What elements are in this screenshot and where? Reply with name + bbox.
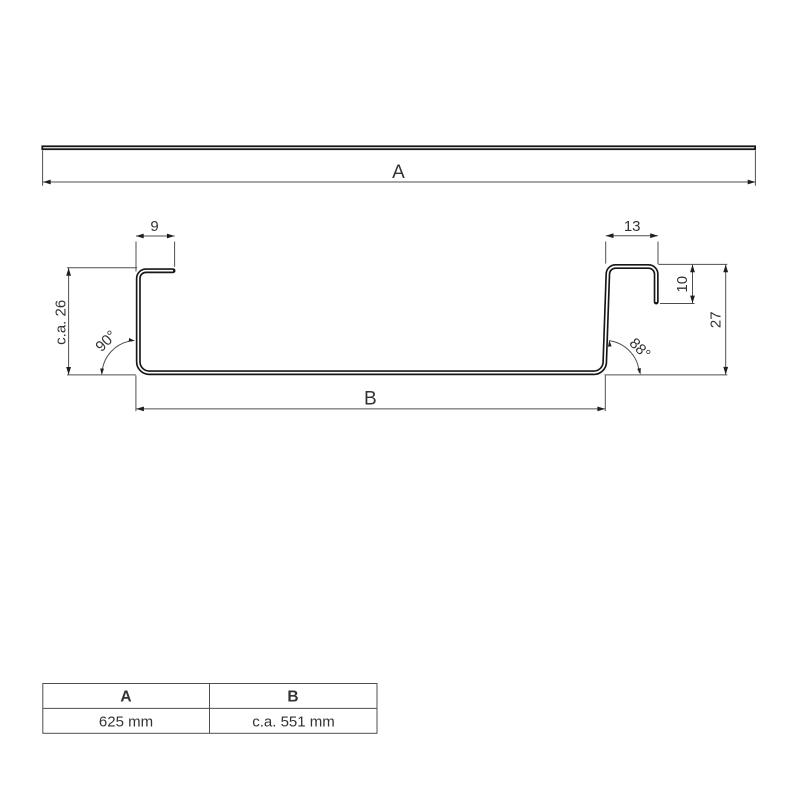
svg-text:A: A [392, 162, 405, 183]
svg-text:B: B [287, 689, 298, 706]
svg-text:27: 27 [708, 311, 725, 328]
svg-text:10: 10 [674, 276, 691, 293]
svg-text:A: A [120, 689, 131, 706]
svg-text:c.a. 551 mm: c.a. 551 mm [252, 714, 335, 731]
svg-text:13: 13 [624, 218, 641, 235]
svg-text:90°: 90° [92, 327, 120, 355]
svg-text:B: B [364, 389, 377, 410]
svg-text:c.a. 26: c.a. 26 [53, 300, 70, 345]
svg-text:88°: 88° [626, 335, 654, 363]
svg-text:625 mm: 625 mm [99, 714, 153, 731]
svg-text:9: 9 [150, 218, 158, 235]
